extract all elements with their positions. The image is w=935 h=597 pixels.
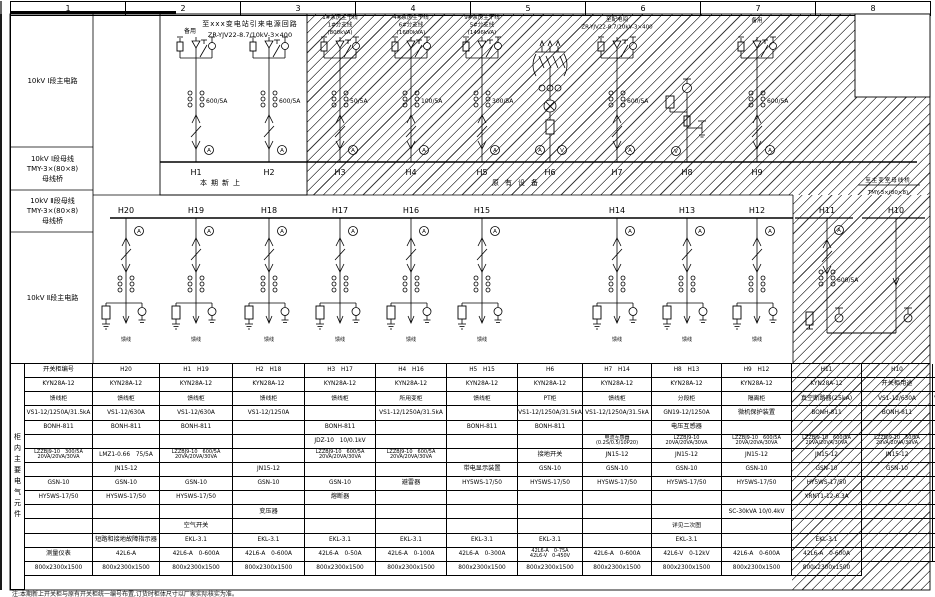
feeder-H20: H20A馈线 [102, 206, 146, 343]
svg-text:ZR-YJV22-8.7/10kV-3×400: ZR-YJV22-8.7/10kV-3×400 [581, 25, 653, 31]
svg-text:A: A [493, 229, 497, 235]
table-cell: GSN-10 [862, 463, 933, 477]
table-cell: 800x2300x1500 [305, 562, 376, 576]
feeder-H3: 50/5AAH31#泵房主干线1#分支线(800kVA) [321, 13, 368, 177]
table-cell: VS1-12/1250A/31.5kA [25, 406, 93, 420]
feeder-H16: H16A馈线 [387, 206, 431, 343]
table-cell: JDZ-10 10/0.1kV [305, 435, 376, 449]
svg-text:A: A [351, 148, 355, 154]
table-cell [305, 406, 376, 420]
svg-text:ZR-YJV22-8.7/10kV-3×400: ZR-YJV22-8.7/10kV-3×400 [208, 31, 292, 39]
table-cell [25, 534, 93, 548]
table-cell: H6 [518, 364, 583, 378]
table-cell: H9 H12 [722, 364, 792, 378]
bus-lines [110, 162, 925, 218]
table-cell: 馈线柜 [447, 392, 518, 406]
table-cell: BONH-811 [25, 421, 93, 435]
table-cell [862, 421, 933, 435]
table-cell [25, 505, 93, 519]
table-cell: GSN-10 [792, 463, 862, 477]
table-cell: VS1-12/630A [93, 406, 160, 420]
table-cell: 馈线柜 [233, 392, 305, 406]
svg-text:H16: H16 [403, 206, 419, 215]
svg-text:100/5A: 100/5A [421, 98, 443, 105]
svg-text:(1496kVA): (1496kVA) [468, 30, 497, 36]
table-cell [583, 534, 652, 548]
svg-text:A: A [538, 148, 542, 154]
svg-text:馈线: 馈线 [477, 336, 487, 343]
table-cell: HY5WS-17/50 [518, 477, 583, 491]
table-cell [447, 491, 518, 505]
table-cell: LZZBJ9-10 300/5A 20VA/20VA/30VA [25, 449, 93, 463]
svg-text:A: A [768, 148, 772, 154]
svg-text:600/5A: 600/5A [837, 277, 859, 284]
feeder-H14: H14A馈线 [593, 206, 637, 343]
table-cell [376, 519, 447, 533]
svg-text:H13: H13 [679, 206, 695, 215]
table-cell: KYN28A-12 [160, 378, 233, 392]
table-cell: KYN28A-12 [233, 378, 305, 392]
svg-text:A: A [422, 229, 426, 235]
table-cell: H7 H14 [583, 364, 652, 378]
table-cell: PT柜 [518, 392, 583, 406]
svg-text:A: A [137, 229, 141, 235]
table-cell: JN15-12 [652, 449, 722, 463]
table-cell: HY5WS-17/50 [652, 477, 722, 491]
table-cell: HY5WS-17/50 [447, 477, 518, 491]
table-cell [722, 519, 792, 533]
svg-text:本期新上: 本期新上 [200, 178, 244, 187]
svg-text:600/5A: 600/5A [279, 98, 301, 105]
feeder-H19: H19A馈线 [172, 206, 216, 343]
svg-text:H7: H7 [611, 168, 622, 177]
feeder-H6: AVH6 [533, 41, 567, 177]
table-cell [792, 519, 862, 533]
table-cell: 所用变柜 [376, 392, 447, 406]
svg-text:H17: H17 [332, 206, 348, 215]
table-cell: 42L6-A 0-600A [583, 548, 652, 562]
table-row-label: 电流互感器 (0.2S/0.5/10P20) [583, 435, 652, 449]
table-cell [447, 406, 518, 420]
svg-text:(800kVA): (800kVA) [327, 30, 352, 36]
table-cell [376, 463, 447, 477]
svg-text:A: A [628, 148, 632, 154]
table-cell [583, 505, 652, 519]
table-cell [376, 435, 447, 449]
table-cell: JN15-12 [93, 463, 160, 477]
table-cell: BONH-811 [305, 421, 376, 435]
svg-text:H12: H12 [749, 206, 765, 215]
table-cell: KYN28A-12 [447, 378, 518, 392]
table-cell [862, 477, 933, 491]
table-cell [518, 505, 583, 519]
table-cell: H11 [792, 364, 862, 378]
table-cell: LZZBJ9-10 600/5A 20VA/20VA/30VA [160, 449, 233, 463]
svg-text:馈线: 馈线 [335, 336, 345, 343]
table-cell [376, 505, 447, 519]
svg-text:A: A [280, 148, 284, 154]
table-cell [447, 449, 518, 463]
table-cell: 馈线柜 [93, 392, 160, 406]
sheet-note: 注:本期新上开关柜与原有开关柜统一编号布置,订货时柜体尺寸以厂家实际核实为准。 [12, 591, 872, 597]
feeder-H18: H18A馈线 [245, 206, 289, 343]
table-cell: VS1-12/1250A/31.5kA [583, 406, 652, 420]
table-cell: GSN-10 [305, 477, 376, 491]
table-cell: LZZBJ9-10 600/5A 20VA/20VA/30VA [376, 449, 447, 463]
table-cell: H10 [862, 364, 933, 378]
table-cell: EKL-3.1 [447, 534, 518, 548]
table-cell: H3 H17 [305, 364, 376, 378]
table-cell [583, 519, 652, 533]
table-cell [862, 505, 933, 519]
table-cell: 馈线柜 [160, 392, 233, 406]
svg-text:6#分支线: 6#分支线 [399, 21, 424, 29]
table-cell [305, 463, 376, 477]
table-cell [93, 505, 160, 519]
table-cell: BONH-811 [93, 421, 160, 435]
table-cell: HY5WS-17/50 [792, 477, 862, 491]
table-cell: GSN-10 [160, 477, 233, 491]
table-row-label: 开关柜编号 [25, 364, 93, 378]
svg-text:A: A [207, 148, 211, 154]
table-cell: JN15-12 [792, 449, 862, 463]
svg-text:H1: H1 [190, 168, 201, 177]
svg-text:(1600kVA): (1600kVA) [397, 30, 426, 36]
table-cell: GSN-10 [652, 463, 722, 477]
table-cell: EKL-3.1 [376, 534, 447, 548]
table-cell [233, 435, 305, 449]
table-cell: KYN28A-12 [583, 378, 652, 392]
drawing-sheet: 12345678 10kV Ⅰ段主电路 10kV Ⅰ段母线 TMY-3×(80×… [0, 0, 935, 597]
svg-text:600/5A: 600/5A [627, 98, 649, 105]
table-cell [518, 435, 583, 449]
feeder-H5: 300/5AAH59#泵房主干线5#分支线(1496kVA) [463, 13, 514, 177]
svg-text:1#泵房主干线: 1#泵房主干线 [322, 13, 358, 21]
table-row-label: 真空断路器(25kA) [792, 392, 862, 406]
svg-text:H4: H4 [405, 168, 416, 177]
svg-text:馈线: 馈线 [752, 336, 762, 343]
svg-text:原有设备: 原有设备 [492, 178, 544, 187]
table-cell: KYN28A-12 [93, 378, 160, 392]
svg-text:至xxx变电站引来电源回路: 至xxx变电站引来电源回路 [202, 19, 297, 28]
table-cell: GSN-10 [722, 463, 792, 477]
table-cell [160, 505, 233, 519]
svg-text:至主变室母线桥: 至主变室母线桥 [865, 176, 911, 184]
table-cell: EKL-3.1 [233, 534, 305, 548]
table-cell [25, 463, 93, 477]
table-cell [25, 519, 93, 533]
table-row-label: 空气开关 [160, 519, 233, 533]
table-cell [518, 519, 583, 533]
svg-text:1#分支线: 1#分支线 [328, 21, 353, 29]
table-cell: 馈线柜 [25, 392, 93, 406]
table-cell: JN15-12 [233, 463, 305, 477]
svg-text:A: A [768, 229, 772, 235]
table-row-label: 短路和接地故障指示器 [93, 534, 160, 548]
table-cell [305, 505, 376, 519]
table-cell: GSN-10 [25, 477, 93, 491]
svg-text:9#泵房主干线: 9#泵房主干线 [464, 13, 500, 21]
table-cell: KYN28A-12 [25, 378, 93, 392]
table-row-label: 测量仪表 [25, 548, 93, 562]
svg-text:H10: H10 [888, 206, 904, 215]
table-cell: 800x2300x1500 [583, 562, 652, 576]
svg-text:馈线: 馈线 [406, 336, 416, 343]
svg-text:600/5A: 600/5A [206, 98, 228, 105]
table-cell [447, 519, 518, 533]
svg-text:备用: 备用 [751, 16, 762, 24]
svg-text:50/5A: 50/5A [350, 98, 368, 105]
table-cell: 42L6-A 0-50A [305, 548, 376, 562]
table-row-label: 微机保护装置 [722, 406, 792, 420]
svg-text:H19: H19 [188, 206, 204, 215]
svg-text:馈线: 馈线 [191, 336, 201, 343]
table-cell: 42L6-V 0-12kV [652, 548, 722, 562]
svg-text:A: A [698, 229, 702, 235]
feeder-H2: 600/5AAH2 [250, 37, 301, 177]
svg-text:H15: H15 [474, 206, 490, 215]
table-cell: GSN-10 [233, 477, 305, 491]
table-cell: KYN28A-12 [792, 378, 862, 392]
svg-text:4#泵房主干线: 4#泵房主干线 [393, 13, 429, 21]
svg-text:馈线: 馈线 [121, 336, 131, 343]
table-cell: EKL-3.1 [652, 534, 722, 548]
table-cell [93, 435, 160, 449]
table-cell: HY5WS-17/50 [160, 491, 233, 505]
table-cell: SC-30kVA 10/0.4kV [722, 505, 792, 519]
table-cell: BONH-811 [518, 421, 583, 435]
table-cell [862, 548, 933, 562]
table-cell: 详见二次图 [652, 519, 722, 533]
table-cell: H4 H16 [376, 364, 447, 378]
table-cell [722, 421, 792, 435]
table-cell [233, 491, 305, 505]
table-cell [652, 491, 722, 505]
table-cell: 42L6-A 0-300A [447, 548, 518, 562]
feeder-H9: 600/5AAH9备用 [738, 16, 789, 177]
table-cell: LZZBJ9-10 50/5A 20VA/20VA/30VA [862, 435, 933, 449]
table-cell: 800x2300x1500 [792, 562, 862, 576]
table-cell: VS1-12/1250A/31.5kA [376, 406, 447, 420]
table-cell: H1 H19 [160, 364, 233, 378]
table-cell: 42L6-A 0-600A [160, 548, 233, 562]
table-cell: 800x2300x1500 [25, 562, 93, 576]
svg-text:H6: H6 [544, 168, 555, 177]
table-cell [93, 519, 160, 533]
table-cell: HY5WS-17/50 [25, 491, 93, 505]
table-cell: 42L6-A 0-600A [722, 548, 792, 562]
svg-text:600/5A: 600/5A [767, 98, 789, 105]
table-cell [160, 435, 233, 449]
table-cell: HY5WS-17/50 [583, 477, 652, 491]
svg-text:A: A [837, 228, 841, 234]
table-cell: 隔离柜 [722, 392, 792, 406]
svg-text:H3: H3 [334, 168, 345, 177]
table-row-label: 开关柜用途 [862, 378, 933, 392]
svg-text:H20: H20 [118, 206, 134, 215]
svg-text:H2: H2 [263, 168, 274, 177]
table-cell [305, 519, 376, 533]
table-cell: 42L6-A 0-100A [376, 548, 447, 562]
table-cell: BONH-811 [447, 421, 518, 435]
table-cell: KYN28A-12 [722, 378, 792, 392]
table-cell [862, 534, 933, 548]
table-cell: LZZBJ9-10 600/5A 20VA/20VA/30VA [792, 435, 862, 449]
table-cell: JN15-12 [583, 449, 652, 463]
table-cell: GSN-10 [583, 463, 652, 477]
svg-text:TMY-3×(80×8): TMY-3×(80×8) [867, 190, 908, 196]
table-cell: VS1-12/1250A [233, 406, 305, 420]
table-cell [583, 421, 652, 435]
table-cell: 42L6-A 0-600A [233, 548, 305, 562]
svg-text:A: A [280, 229, 284, 235]
table-cell: LZZBJ9-10 600/5A 20VA/20VA/30VA [722, 435, 792, 449]
svg-text:备用: 备用 [184, 27, 196, 35]
table-cell: 馈线柜 [305, 392, 376, 406]
table-row-label: 熔断器 [305, 491, 376, 505]
equipment-table: 开关柜编号H20H1 H19H2 H18H3 H17H4 H16H5 H15H6… [25, 363, 930, 590]
table-cell: VS1-12/630A [160, 406, 233, 420]
table-row-label: 电压互感器 [652, 421, 722, 435]
svg-text:馈线: 馈线 [612, 336, 622, 343]
table-cell: 800x2300x1500 [518, 562, 583, 576]
table-cell: HY5WS-17/50 [722, 477, 792, 491]
table-cell: VS1-12/630A [862, 392, 933, 406]
table-cell [376, 421, 447, 435]
feeder-H11: H11A600/5A [806, 206, 896, 333]
table-cell: 800x2300x1500 [233, 562, 305, 576]
table-row-label: 接地开关 [518, 449, 583, 463]
table-cell [722, 534, 792, 548]
feeder-H15: H15A馈线 [458, 206, 502, 343]
table-cell: VS1-12/1250A/31.5kA [518, 406, 583, 420]
svg-text:馈线: 馈线 [264, 336, 274, 343]
table-cell: KYN28A-12 [376, 378, 447, 392]
svg-text:至配电间: 至配电间 [606, 15, 628, 23]
table-cell [447, 435, 518, 449]
table-cell: LZZBJ9-10 600/5A 20VA/20VA/30VA [305, 449, 376, 463]
table-row-label: 避雷器 [376, 477, 447, 491]
feeder-H4: 100/5AAH44#泵房主干线6#分支线(1600kVA) [392, 13, 443, 177]
table-cell: GSN-10 [518, 463, 583, 477]
table-cell: H5 H15 [447, 364, 518, 378]
table-cell: EKL-3.1 [518, 534, 583, 548]
svg-text:V: V [560, 148, 564, 154]
table-cell [862, 519, 933, 533]
feeder-H12: H12A馈线 [733, 206, 777, 343]
table-cell: H2 H18 [233, 364, 305, 378]
table-cell: XRNT1-12-6.3A [792, 491, 862, 505]
svg-text:A: A [351, 229, 355, 235]
table-cell [722, 491, 792, 505]
svg-text:V: V [674, 149, 678, 155]
table-cell [862, 491, 933, 505]
table-cell [447, 505, 518, 519]
table-cell: 42L6-A [93, 548, 160, 562]
table-cell: KYN28A-12 [652, 378, 722, 392]
table-cell [792, 505, 862, 519]
feeder-H7: 600/5AAH7至配电间ZR-YJV22-8.7/10kV-3×400 [581, 15, 653, 177]
svg-text:H8: H8 [681, 168, 692, 177]
svg-text:H9: H9 [751, 168, 762, 177]
feeder-H1: 600/5AAH1 [177, 37, 228, 177]
table-cell [233, 519, 305, 533]
svg-text:A: A [628, 229, 632, 235]
svg-text:H18: H18 [261, 206, 277, 215]
svg-text:馈线: 馈线 [682, 336, 692, 343]
table-side-label: 柜内主要电气元件 [10, 363, 25, 590]
table-cell: 800x2300x1500 [722, 562, 792, 576]
table-cell: BONH-811 [160, 421, 233, 435]
table-cell [233, 449, 305, 463]
table-cell: 分段柜 [652, 392, 722, 406]
table-cell: GN19-12/1250A [652, 406, 722, 420]
feeder-H13: H13A馈线 [663, 206, 707, 343]
table-cell: LMZ1-0.66 75/5A [93, 449, 160, 463]
feeder-H10: H10 [888, 206, 912, 333]
feeder-H17: H17A馈线 [316, 206, 360, 343]
svg-text:H11: H11 [819, 206, 835, 215]
table-cell [652, 505, 722, 519]
svg-text:H14: H14 [609, 206, 625, 215]
table-cell: HY5WS-17/50 [93, 491, 160, 505]
table-cell [792, 421, 862, 435]
table-cell: JN15-12 [862, 449, 933, 463]
table-cell [233, 421, 305, 435]
table-cell: EKL-3.1 [792, 534, 862, 548]
table-cell: 800x2300x1500 [160, 562, 233, 576]
table-cell: BONH-811 [792, 406, 862, 420]
table-cell [25, 435, 93, 449]
table-cell: BONH-811 [862, 406, 933, 420]
svg-text:A: A [493, 148, 497, 154]
table-cell: 42L6-A 0-600A [792, 548, 862, 562]
table-cell: 800x2300x1500 [652, 562, 722, 576]
table-cell: 42L6-A 0-75A 42L6-V 0-450V [518, 548, 583, 562]
svg-text:5#分支线: 5#分支线 [470, 21, 495, 29]
table-cell [376, 491, 447, 505]
table-cell: JN15-12 [722, 449, 792, 463]
table-cell [518, 491, 583, 505]
table-cell: H20 [93, 364, 160, 378]
table-row-label: 变压器 [233, 505, 305, 519]
table-cell: KYN28A-12 [305, 378, 376, 392]
table-cell: 800x2300x1500 [93, 562, 160, 576]
table-cell: LZZBJ9-10 20VA/20VA/30VA [652, 435, 722, 449]
table-cell: 800x2300x1500 [376, 562, 447, 576]
svg-text:A: A [207, 229, 211, 235]
svg-text:300/5A: 300/5A [492, 98, 514, 105]
table-cell: EKL-3.1 [305, 534, 376, 548]
table-row-label: 带电显示装置 [447, 463, 518, 477]
table-cell [583, 491, 652, 505]
table-cell: 馈线柜 [583, 392, 652, 406]
table-cell: GSN-10 [93, 477, 160, 491]
table-cell [160, 463, 233, 477]
table-cell: EKL-3.1 [160, 534, 233, 548]
svg-text:H5: H5 [476, 168, 487, 177]
svg-text:A: A [422, 148, 426, 154]
table-cell: 800x2300x1500 [447, 562, 518, 576]
table-cell: H8 H13 [652, 364, 722, 378]
table-cell: KYN28A-12 [518, 378, 583, 392]
